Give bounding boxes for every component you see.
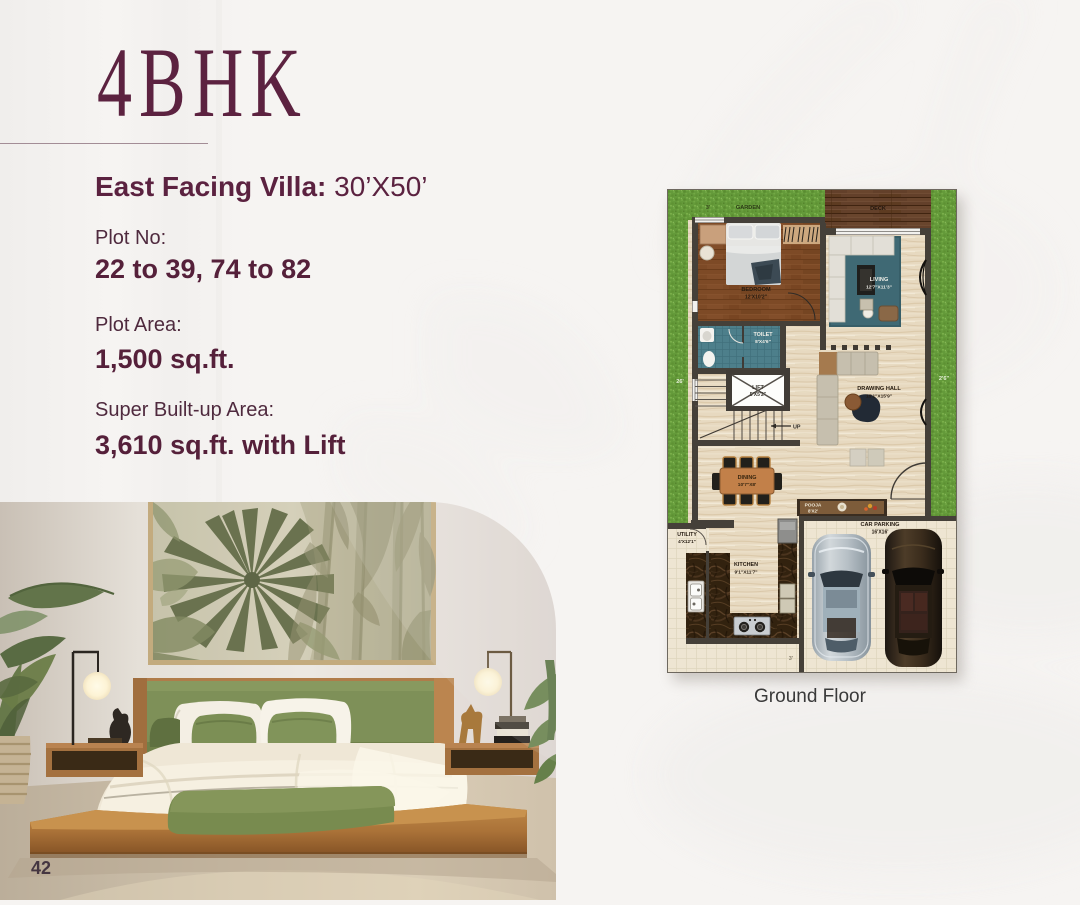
svg-text:UTILITY: UTILITY bbox=[677, 532, 697, 538]
svg-text:DINING: DINING bbox=[738, 475, 757, 481]
svg-text:3': 3' bbox=[789, 656, 794, 662]
svg-text:8'X4'6": 8'X4'6" bbox=[755, 339, 771, 345]
svg-text:KITCHEN: KITCHEN bbox=[734, 562, 758, 568]
svg-text:TOILET: TOILET bbox=[753, 332, 773, 338]
svg-text:LIFT: LIFT bbox=[752, 385, 764, 391]
svg-text:9'1"X11'7": 9'1"X11'7" bbox=[734, 570, 757, 576]
svg-text:DECK: DECK bbox=[870, 206, 886, 212]
svg-text:DRAWING HALL: DRAWING HALL bbox=[857, 386, 901, 392]
svg-text:26': 26' bbox=[676, 379, 684, 385]
svg-text:2'6": 2'6" bbox=[939, 376, 950, 382]
svg-text:10'7"X8': 10'7"X8' bbox=[738, 482, 756, 488]
svg-text:12'7"X11'3": 12'7"X11'3" bbox=[866, 285, 892, 291]
svg-text:GARDEN: GARDEN bbox=[736, 205, 760, 211]
svg-text:UP: UP bbox=[793, 425, 801, 431]
svg-text:BEDROOM: BEDROOM bbox=[741, 287, 771, 293]
svg-text:CAR PARKING: CAR PARKING bbox=[860, 522, 899, 528]
svg-text:15'1"X15'9": 15'1"X15'9" bbox=[866, 394, 892, 400]
svg-text:16'X16': 16'X16' bbox=[872, 530, 889, 536]
svg-text:8'X2': 8'X2' bbox=[808, 509, 818, 514]
svg-text:5'X5'2": 5'X5'2" bbox=[750, 392, 767, 398]
svg-text:4'X12'1": 4'X12'1" bbox=[678, 539, 696, 544]
svg-text:LIVING: LIVING bbox=[870, 277, 889, 283]
svg-text:3': 3' bbox=[706, 205, 710, 211]
svg-text:12'X10'2": 12'X10'2" bbox=[745, 295, 768, 301]
